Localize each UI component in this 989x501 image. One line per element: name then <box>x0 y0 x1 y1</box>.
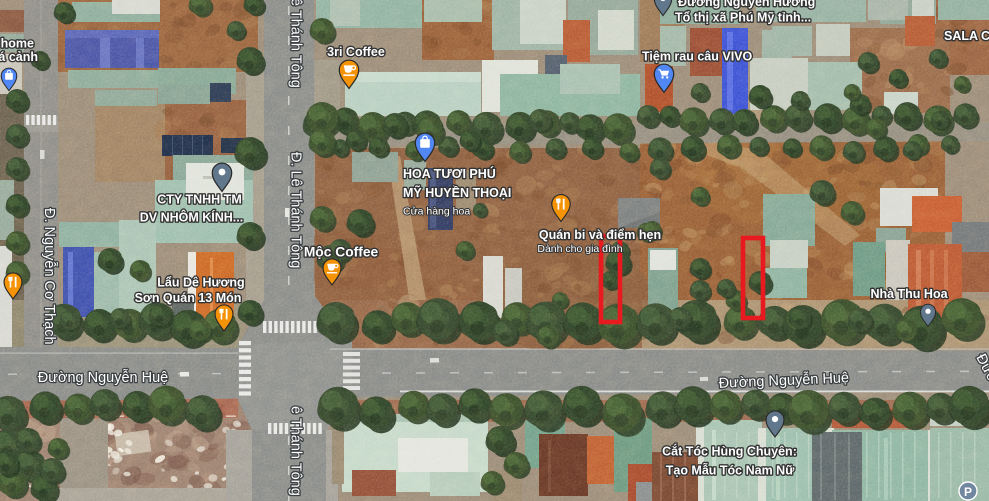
svg-text:P: P <box>964 485 972 499</box>
svg-text:ê Thánh Tông: ê Thánh Tông <box>288 406 304 496</box>
svg-text:SALA C: SALA C <box>944 29 989 43</box>
svg-text:Sơn Quán 13 Món: Sơn Quán 13 Món <box>135 291 242 305</box>
svg-text:CTY TNHH TM: CTY TNHH TM <box>157 193 242 207</box>
svg-text:Đ. Nguyễn Cơ Thạch: Đ. Nguyễn Cơ Thạch <box>41 208 58 345</box>
svg-text:Nhà Thu Hoa: Nhà Thu Hoa <box>870 287 948 301</box>
svg-text:Dành cho gia đình: Dành cho gia đình <box>537 243 622 255</box>
svg-text:Tạo Mẫu Tóc Nam Nữ: Tạo Mẫu Tóc Nam Nữ <box>666 463 795 478</box>
svg-text:á cảnh: á cảnh <box>0 50 38 64</box>
svg-text:Tiệm rau câu VIVO: Tiệm rau câu VIVO <box>642 50 753 64</box>
svg-text:3ri Coffee: 3ri Coffee <box>327 45 385 59</box>
svg-text:Đường Nguyễn Hương: Đường Nguyễn Hương <box>678 0 815 9</box>
svg-text:Đ. Lê Thánh Tông: Đ. Lê Thánh Tông <box>288 152 304 268</box>
svg-text:Đường Nguyễn Huệ: Đường Nguyễn Huệ <box>38 369 168 386</box>
svg-text:Quán bi và điểm hẹn: Quán bi và điểm hẹn <box>539 228 661 242</box>
svg-text:HOA TƯƠI PHÚ: HOA TƯƠI PHÚ <box>403 166 496 181</box>
svg-text:home: home <box>1 37 34 51</box>
svg-text:ê Thánh Tông: ê Thánh Tông <box>288 0 304 88</box>
svg-text:Cắt Tóc Hùng Chuyên:: Cắt Tóc Hùng Chuyên: <box>662 444 797 459</box>
svg-text:MỸ HUYỀN THOẠI: MỸ HUYỀN THOẠI <box>403 185 511 200</box>
svg-text:DV NHÔM KÍNH...: DV NHÔM KÍNH... <box>140 210 243 225</box>
svg-text:Tổ thị xã Phú Mỹ tỉnh...: Tổ thị xã Phú Mỹ tỉnh... <box>675 11 811 25</box>
svg-text:Mộc Coffee: Mộc Coffee <box>304 245 379 260</box>
svg-text:Lẩu Dê Hương: Lẩu Dê Hương <box>157 276 244 290</box>
svg-text:Cửa hàng hoa: Cửa hàng hoa <box>403 206 470 218</box>
